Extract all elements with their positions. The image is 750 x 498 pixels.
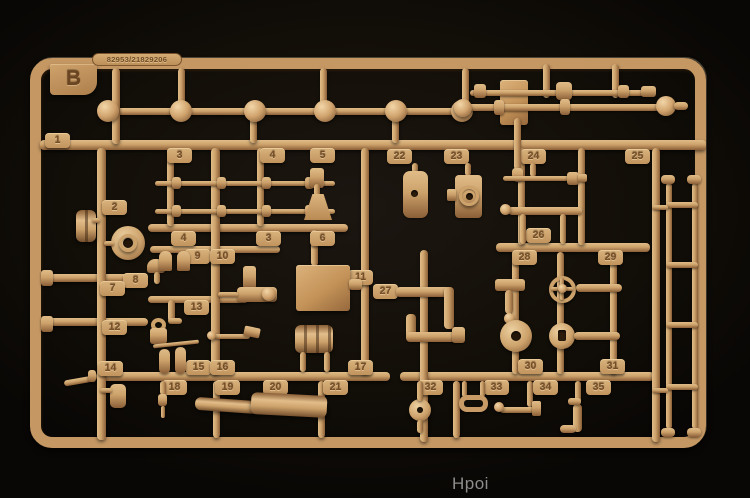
part-rod-collar: [494, 100, 504, 115]
part-sprayer-bottle: [110, 384, 126, 408]
part-rod-fitting: [262, 205, 271, 217]
part-rail-cap: [687, 428, 701, 437]
part-capsule: [159, 349, 170, 374]
part-hook-foot: [168, 318, 182, 324]
part-number-tag: 16: [210, 360, 235, 375]
part-ladder-rung: [666, 202, 698, 208]
part-stem: [417, 381, 423, 401]
runner-vertical: [610, 252, 617, 374]
part-number-tag: 30: [518, 359, 543, 374]
part-number-tag: 35: [586, 380, 611, 395]
part-rod-knob: [556, 82, 572, 100]
part-long-rod: [503, 176, 575, 181]
part-needle-stem: [160, 381, 166, 395]
part-grip: [243, 266, 256, 289]
part-number-tag: 7: [100, 281, 125, 296]
part-round-knob: [170, 100, 192, 122]
part-number-tag: 19: [215, 380, 240, 395]
part-rod-tip: [674, 102, 688, 110]
part-connector: [104, 241, 114, 246]
part-rod-fitting: [217, 205, 226, 217]
part-drum-post: [324, 352, 330, 372]
part-pipe-elbow: [444, 287, 454, 329]
part-grab-handle: [459, 395, 488, 412]
part-valve-rod: [500, 407, 536, 413]
part-valve-bracket: [532, 401, 541, 416]
part-ribbed-drum: [295, 325, 333, 353]
part-pipe-flange: [452, 327, 465, 343]
part-round-knob: [385, 100, 407, 122]
part-rod-tip: [578, 174, 587, 182]
part-number-tag: 29: [598, 250, 623, 265]
runner-horizontal: [40, 140, 706, 150]
part-number-tag: 26: [526, 228, 551, 243]
part-valve-knob: [494, 402, 504, 412]
part-number-tag: 12: [102, 320, 127, 335]
part-number-tag: 4: [171, 231, 196, 246]
part-number-tag: 31: [600, 359, 625, 374]
runner-vertical: [361, 148, 369, 374]
part-box-lug: [349, 279, 362, 290]
part-round-knob: [97, 100, 119, 122]
part-capsule: [175, 347, 186, 374]
part-pipe-foot: [560, 425, 576, 433]
part-number-tag: 1: [45, 133, 70, 148]
part-ladder-rung: [666, 262, 698, 268]
part-number-tag: 22: [387, 149, 412, 164]
part-small-wheel: [409, 399, 431, 421]
part-crank-ball: [207, 331, 216, 340]
part-number-tag: 27: [373, 284, 398, 299]
part-wheel-rod: [576, 284, 622, 292]
part-needle-body: [158, 394, 167, 406]
part-number-tag: 3: [256, 231, 281, 246]
part-ladder-rung: [666, 322, 698, 328]
part-stem: [530, 163, 536, 177]
part-road-wheel: [500, 320, 532, 352]
part-rod-ball: [656, 96, 676, 116]
part-tee-stem: [505, 290, 513, 314]
part-number-tag: 8: [123, 273, 148, 288]
part-cap-stem: [154, 272, 160, 284]
part-connector: [652, 388, 668, 393]
part-frame-stub: [41, 316, 53, 332]
part-number-tag: 28: [512, 250, 537, 265]
part-gauge-knob: [447, 189, 456, 201]
part-number-tag: 15: [186, 360, 211, 375]
part-rod-knob: [618, 85, 629, 98]
part-rod-fitting: [262, 177, 271, 189]
part-number-tag: 13: [184, 300, 209, 315]
part-number-tag: 10: [210, 249, 235, 264]
part-stem: [417, 420, 423, 433]
part-round-knob: [244, 100, 266, 122]
part-rod-collar: [560, 99, 570, 115]
part-connector: [92, 218, 100, 223]
part-rod-fitting: [172, 205, 181, 217]
part-rod-ball: [454, 99, 472, 117]
part-bracket-end: [88, 370, 96, 382]
part-number-tag: 34: [533, 380, 558, 395]
part-number-tag: 24: [521, 149, 546, 164]
part-handle-rod: [508, 207, 582, 215]
part-ladder-rail: [692, 183, 698, 429]
part-small-bottle: [76, 210, 96, 242]
part-pipe-top: [568, 398, 581, 405]
part-rod-knob: [474, 84, 486, 98]
part-frame-stub: [41, 270, 53, 286]
runner-vertical: [512, 252, 519, 374]
part-connector: [652, 205, 668, 210]
part-needle-tip: [161, 406, 165, 418]
part-number-tag: 23: [444, 149, 469, 164]
part-disc-rod: [574, 332, 620, 340]
part-number-tag: 4: [260, 148, 285, 163]
part-rail-cap: [661, 175, 675, 184]
part-rod-ball: [500, 204, 511, 215]
part-number-tag: 21: [323, 380, 348, 395]
part-number-tag: 2: [102, 200, 127, 215]
part-stowage-box: [296, 265, 350, 311]
part-sprayer-spout: [100, 388, 112, 393]
part-ladder-rung: [666, 384, 698, 390]
part-slot: [558, 330, 566, 341]
part-padlock-body: [150, 328, 167, 344]
part-valve-part: [159, 251, 172, 271]
part-rail-cap: [687, 175, 701, 184]
part-hole: [511, 331, 521, 341]
sprue-photo: B 82953/21829206 Hpoi 134522232425243626…: [0, 0, 750, 498]
runner-vertical: [578, 148, 585, 245]
part-number-tag: 33: [484, 380, 509, 395]
part-stem: [520, 214, 526, 244]
part-gun-tube-thick: [250, 392, 327, 418]
part-wheel-hub: [558, 284, 567, 293]
runner-vertical: [453, 381, 460, 438]
part-valve-part: [177, 251, 190, 271]
part-number-tag: 25: [625, 149, 650, 164]
part-rod-fitting: [172, 177, 181, 189]
part-gun-post: [514, 118, 521, 170]
runner-horizontal: [100, 108, 468, 115]
mold-number-stamp: 82953/21829206: [92, 53, 182, 66]
part-stem: [560, 214, 566, 244]
runner-vertical: [652, 148, 660, 442]
part-rod-end: [641, 86, 656, 97]
part-plate-hole: [411, 190, 418, 197]
sprue-letter-tab: B: [50, 64, 97, 95]
part-connector: [218, 292, 238, 297]
part-horn-ring: [119, 234, 137, 252]
runner-vertical: [557, 252, 564, 374]
part-rail-cap: [661, 428, 675, 437]
part-number-tag: 17: [348, 360, 373, 375]
part-gauge-center: [466, 193, 473, 200]
part-hole: [417, 407, 423, 413]
part-drum-post: [300, 352, 306, 372]
watermark-text: Hpoi: [452, 474, 489, 494]
part-muzzle: [262, 287, 276, 301]
part-number-tag: 14: [98, 361, 123, 376]
part-round-knob: [314, 100, 336, 122]
part-number-tag: 3: [167, 148, 192, 163]
part-number-tag: 6: [310, 231, 335, 246]
part-rod-fitting: [217, 177, 226, 189]
part-number-tag: 5: [310, 148, 335, 163]
